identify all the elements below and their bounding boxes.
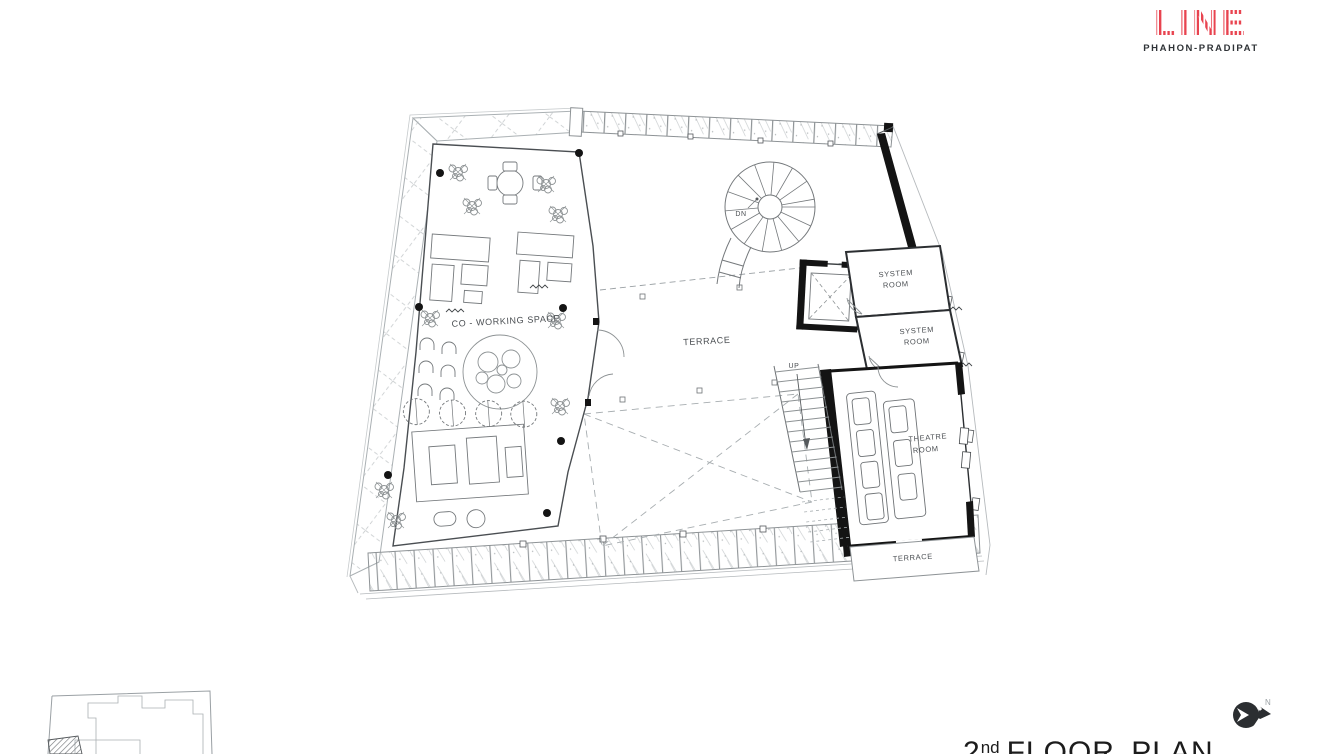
system-room-1: SYSTEM ROOM: [846, 246, 950, 317]
stair-up-label: UP: [789, 363, 800, 370]
planting-band-top: [569, 108, 893, 147]
floor-plan-drawing: TERRACE DN: [0, 0, 1342, 754]
terrace-wall: [846, 127, 918, 263]
brand-logo: LINE PHAHON-PRADIPAT: [1138, 4, 1264, 54]
theatre-room: THEATRE ROOM: [820, 362, 975, 561]
drawing-title-text: FLOOR PLAN: [1007, 736, 1214, 754]
drawing-title-number: 2: [963, 736, 981, 754]
room-label-terrace: TERRACE: [683, 335, 731, 347]
brand-logo-subtitle: PHAHON-PRADIPAT: [1138, 43, 1264, 54]
drawing-title-ordinal: nd: [981, 738, 1000, 754]
drawing-title: 2ndFLOOR PLAN: [963, 736, 1214, 754]
brand-logo-text: LINE: [1154, 4, 1248, 43]
drawing-sheet: TERRACE DN: [0, 0, 1342, 754]
stair-down-label: DN: [735, 211, 746, 218]
north-arrow-icon: N: [1233, 698, 1271, 728]
north-label: N: [1265, 698, 1271, 707]
key-plan: [48, 691, 212, 754]
void-opening: [584, 394, 812, 546]
room-label-system1b: ROOM: [883, 279, 909, 290]
room-label-system2b: ROOM: [904, 336, 930, 347]
